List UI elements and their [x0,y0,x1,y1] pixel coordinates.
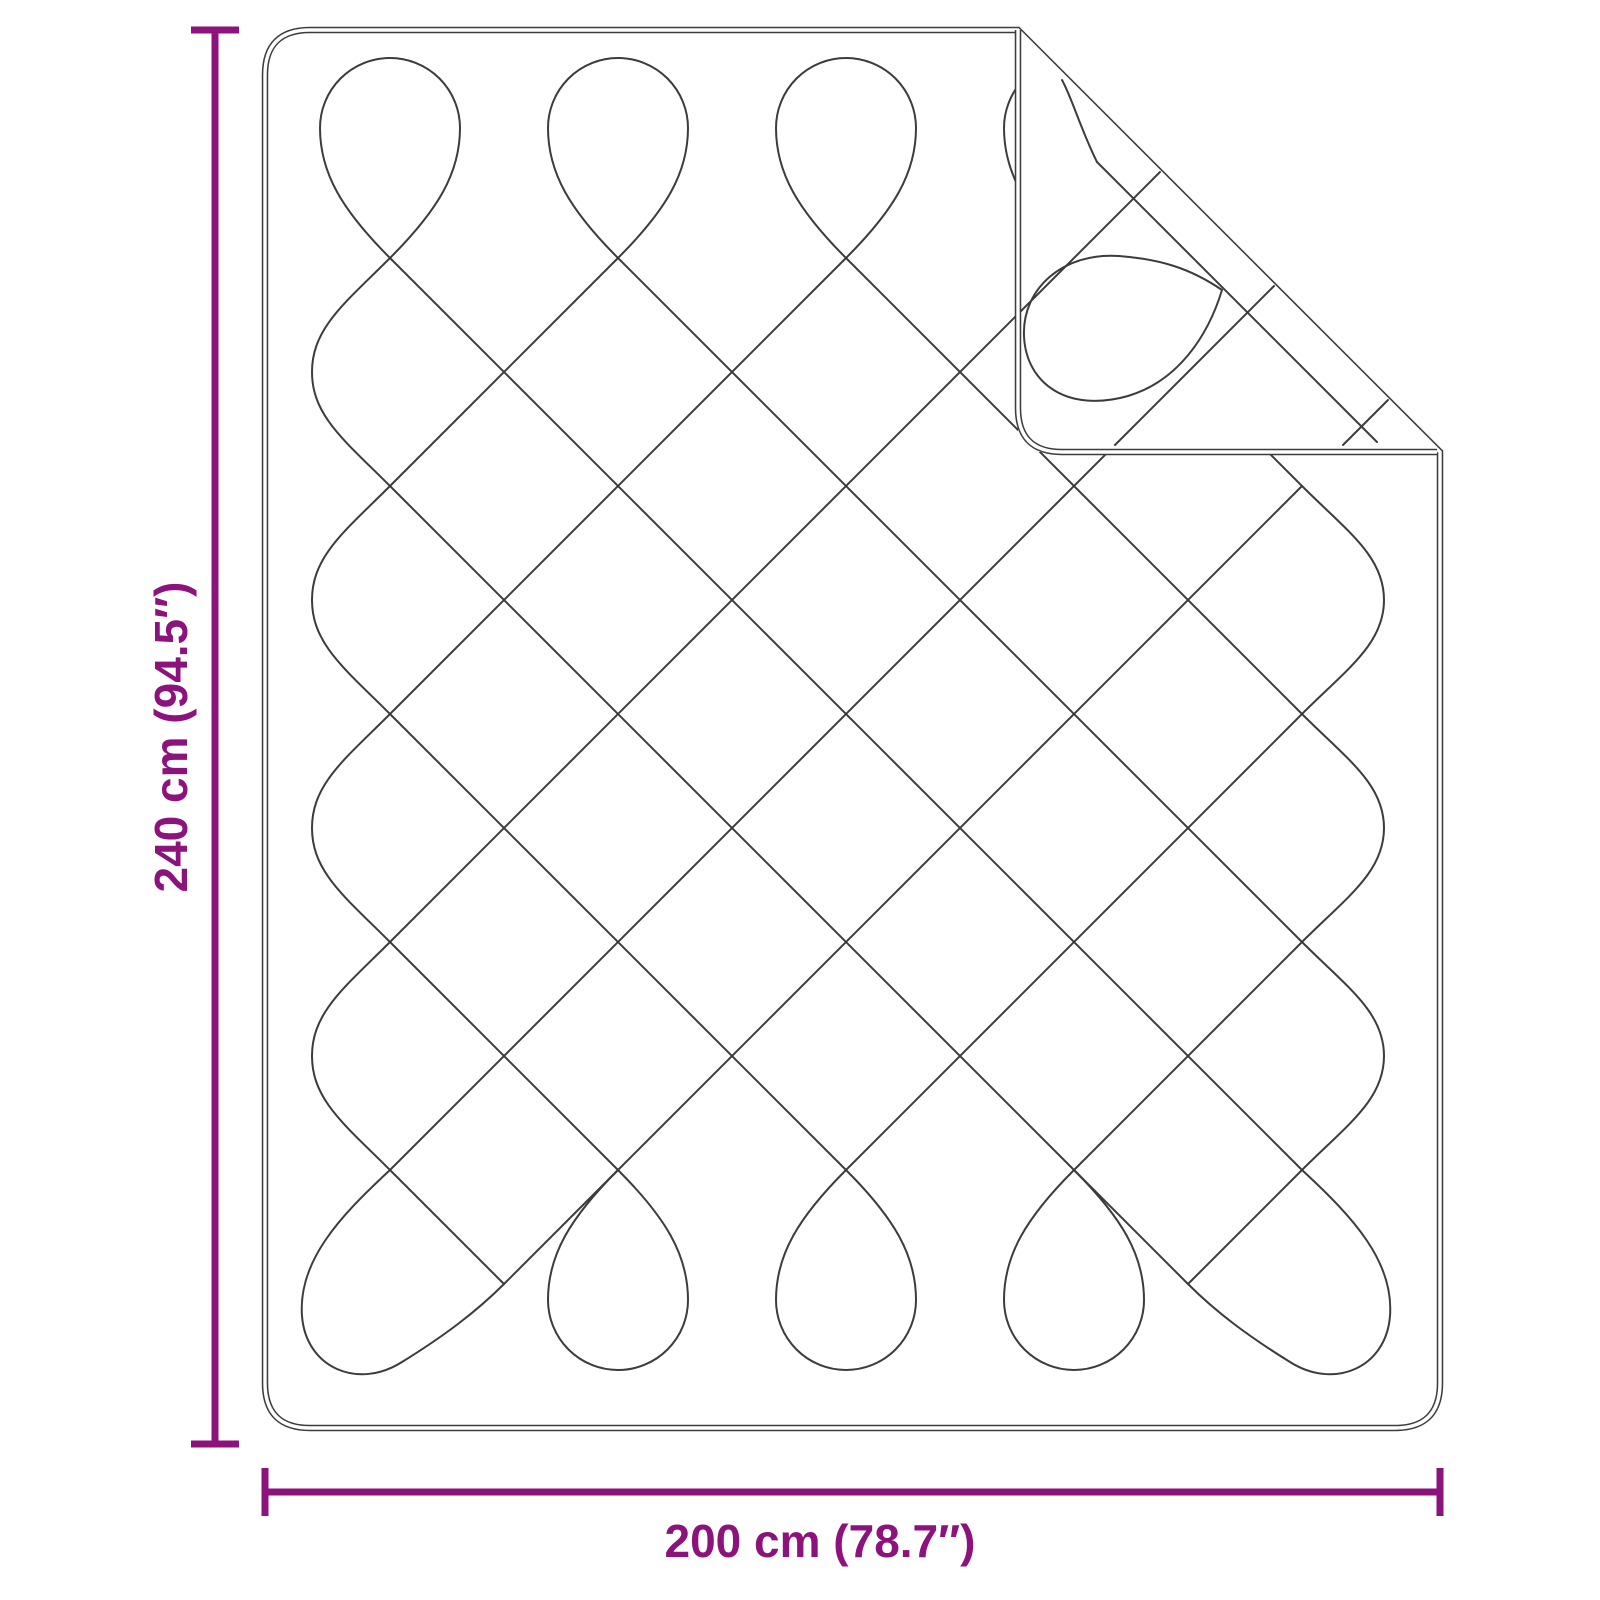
width-dimension: 200 cm (78.7″) [262,1468,1444,1567]
blanket-body [265,30,1440,1428]
height-dimension-cap-bottom [191,1441,239,1448]
width-dimension-line [265,1489,1440,1496]
width-dimension-cap-right [1437,1468,1444,1516]
blanket-diagram-canvas: 240 cm (94.5″) 200 cm (78.7″) [0,0,1600,1600]
product-dimension-diagram: 240 cm (94.5″) 200 cm (78.7″) [0,0,1600,1600]
height-dimension-label: 240 cm (94.5″) [145,582,197,893]
width-dimension-cap-left [262,1468,269,1516]
height-dimension-line [212,30,219,1444]
height-dimension-cap-top [191,27,239,34]
height-dimension: 240 cm (94.5″) [145,27,239,1448]
blanket-silhouette [265,30,1440,1428]
width-dimension-label: 200 cm (78.7″) [665,1515,976,1567]
